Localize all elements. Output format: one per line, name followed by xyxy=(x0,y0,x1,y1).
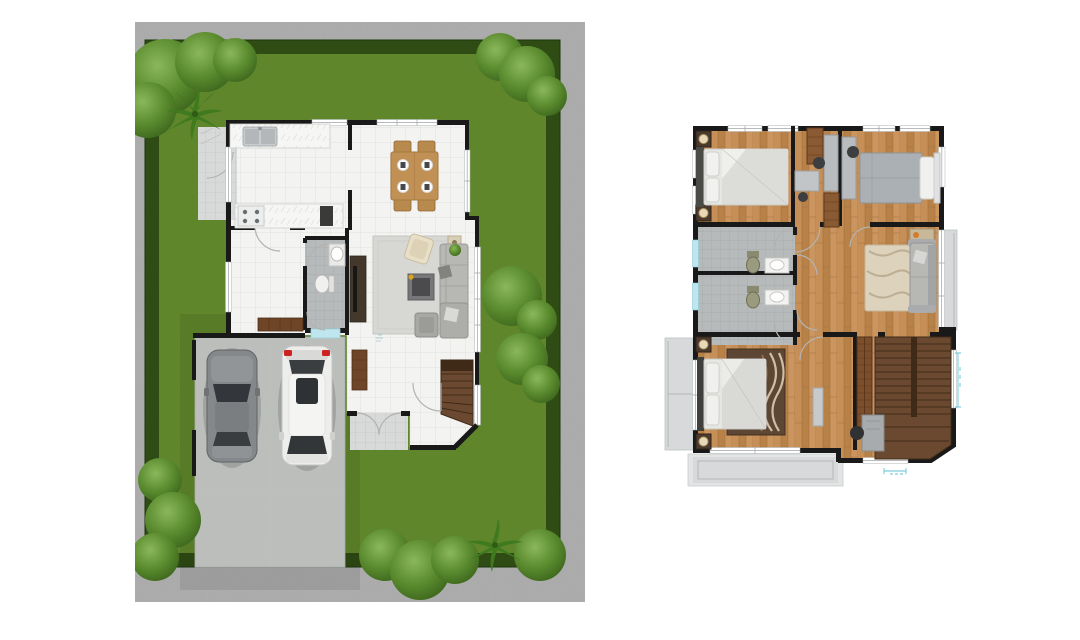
desk-chair xyxy=(847,146,859,158)
taillight xyxy=(284,350,292,356)
plant xyxy=(449,244,461,256)
desk xyxy=(824,135,838,191)
doormat xyxy=(311,329,340,338)
sink-basin xyxy=(770,260,784,270)
dining-chair xyxy=(418,199,435,211)
hall-bench xyxy=(258,318,303,331)
lamp xyxy=(699,437,708,446)
bathroom-sink xyxy=(331,247,343,261)
frosted-window xyxy=(693,283,699,310)
cabinet xyxy=(824,193,839,227)
toilet xyxy=(315,275,329,293)
pillow xyxy=(706,395,719,425)
pillow xyxy=(920,157,934,199)
floor-plans-canvas xyxy=(0,0,1080,640)
pillow xyxy=(706,178,719,202)
desk-chair xyxy=(798,192,808,202)
stove xyxy=(238,206,264,226)
lamp xyxy=(699,340,708,349)
dining-chair xyxy=(394,141,411,153)
toilet xyxy=(747,292,760,308)
balcony-right xyxy=(944,230,957,330)
bathrooms-floor xyxy=(697,227,795,345)
tv-screen xyxy=(353,266,357,312)
desk-chair xyxy=(813,157,825,169)
taillight xyxy=(322,350,330,356)
car-white-suv xyxy=(278,345,336,471)
dining-chair xyxy=(394,199,411,211)
upper-staircase xyxy=(875,337,951,459)
balcony-left xyxy=(665,338,693,450)
frosted-window xyxy=(693,240,699,267)
car-gray-sedan xyxy=(203,348,261,468)
desk xyxy=(862,415,884,451)
headboard xyxy=(696,147,704,207)
pillow xyxy=(706,363,719,393)
desk-lamp xyxy=(913,232,919,238)
lamp xyxy=(699,135,708,144)
dining-chair xyxy=(418,141,435,153)
tv-console xyxy=(350,256,366,322)
sofa-armrest xyxy=(908,305,936,313)
toilet xyxy=(747,257,760,273)
dining-set xyxy=(391,141,438,211)
sink-basin xyxy=(770,292,784,302)
lamp xyxy=(699,209,708,218)
pillow xyxy=(706,152,719,176)
headboard xyxy=(697,357,704,431)
balcony-bottom xyxy=(688,454,843,486)
desk-chair xyxy=(850,426,864,440)
first-floor-plan xyxy=(135,22,585,602)
desk xyxy=(795,171,819,191)
dresser xyxy=(813,388,823,426)
headboard xyxy=(934,153,940,203)
cooktop-dark xyxy=(320,206,333,226)
second-floor-plan xyxy=(648,105,978,505)
flower-decor xyxy=(408,274,413,279)
